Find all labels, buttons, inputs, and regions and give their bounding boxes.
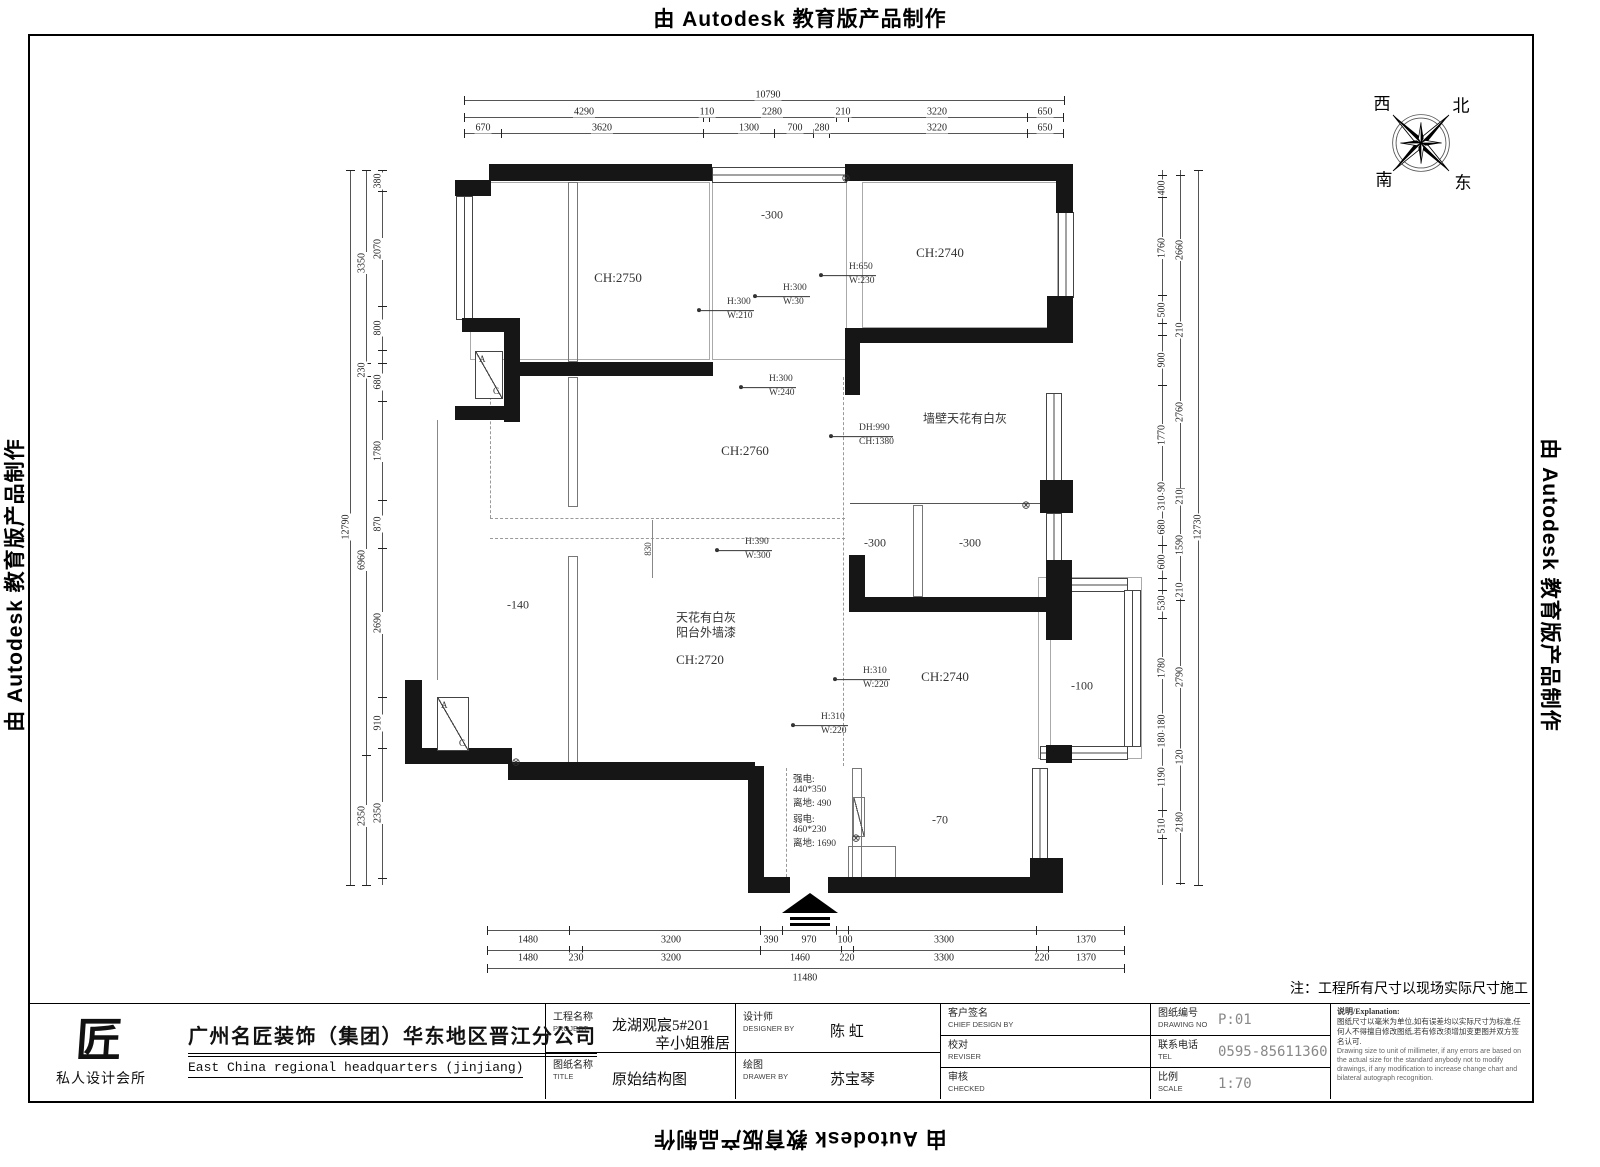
scale-label-cn: 比例	[1158, 1072, 1178, 1083]
dim-tick	[378, 191, 387, 192]
dimension-label: 600	[1157, 554, 1168, 571]
dim-tick	[569, 926, 570, 935]
dim-tick	[1176, 883, 1185, 884]
wall-segment	[1046, 745, 1072, 763]
dim-tick	[464, 129, 465, 138]
checker-label: 审核 CHECKED	[948, 1072, 985, 1093]
plan-annotation: H:310W:220	[862, 666, 890, 692]
dimension-label: 2690	[373, 612, 384, 634]
entry-arrow	[782, 893, 838, 913]
dimension-label: 180	[1157, 714, 1168, 731]
dim-tick	[782, 926, 783, 935]
partition-line	[568, 556, 578, 764]
dim-tick	[487, 946, 488, 955]
plan-annotation: 830	[643, 542, 653, 556]
dimension-label: 2660	[1175, 239, 1186, 261]
drawer-label-en: DRAWER BY	[743, 1072, 788, 1081]
dim-tick	[378, 363, 387, 364]
company-logo: 匠	[70, 1014, 128, 1066]
wall-segment	[845, 164, 1073, 181]
dim-tick	[1158, 323, 1167, 324]
dimension-label: 220	[839, 953, 856, 964]
dimension-label: 3220	[926, 123, 948, 134]
project-label-en: PROJECT	[553, 1024, 593, 1033]
dimension-label: 100	[837, 935, 854, 946]
designer-label-en: DESIGNER BY	[743, 1024, 794, 1033]
dim-tick	[378, 500, 387, 501]
ac-label-c: C	[493, 386, 499, 396]
dim-tick	[774, 129, 775, 138]
dimension-label: 1370	[1075, 935, 1097, 946]
dimension-label: 2790	[1175, 666, 1186, 688]
dimension-label: 210	[1175, 582, 1186, 599]
dim-tick	[1194, 885, 1203, 886]
plan-annotation: CH:2720	[676, 652, 724, 668]
dimension-label: 910	[373, 715, 384, 732]
dimension-label: 280	[814, 123, 831, 134]
titleblock-divider	[1330, 1003, 1331, 1099]
dim-tick	[703, 129, 704, 138]
dashed-ceiling-line	[490, 518, 845, 519]
dimension-label: 1460	[789, 953, 811, 964]
wall-segment	[520, 362, 713, 376]
dim-rail	[1180, 170, 1181, 885]
checker-label-en: CHECKED	[948, 1084, 985, 1093]
dim-tick	[378, 170, 387, 171]
plan-annotation: -140	[507, 598, 529, 613]
dim-tick	[1124, 926, 1125, 935]
titleblock-divider	[940, 1035, 1330, 1036]
dimension-label: 12790	[341, 514, 352, 541]
drawing-no-label-en: DRAWING NO	[1158, 1020, 1207, 1029]
dim-tick	[1158, 175, 1167, 176]
plan-annotation: DH:990CH:1380	[858, 423, 894, 449]
plan-annotation: CH:2740	[916, 245, 964, 261]
dimension-label: 2350	[357, 805, 368, 827]
dim-tick	[362, 755, 371, 756]
dimension-label: 120	[1175, 749, 1186, 766]
dimension-label: 3200	[660, 935, 682, 946]
plan-annotation: CH:2740	[921, 669, 969, 685]
dimension-label: 10790	[755, 90, 782, 101]
entry-step-line	[790, 923, 830, 926]
dimension-label: 970	[801, 935, 818, 946]
ac-unit-box: AC	[475, 351, 503, 399]
wall-segment	[845, 328, 1067, 343]
tel-value: 0595-85611360	[1218, 1044, 1328, 1060]
tel-label-cn: 联系电话	[1158, 1040, 1198, 1051]
dimension-label: 400	[1157, 180, 1168, 197]
wall-segment	[862, 597, 1052, 612]
project-label: 工程名称 PROJECT	[553, 1012, 593, 1033]
dim-tick	[362, 885, 371, 886]
dim-tick	[362, 170, 371, 171]
dimension-label: 380	[373, 173, 384, 190]
drawing-no-value: P:01	[1218, 1012, 1252, 1028]
dim-tick	[378, 350, 387, 351]
dimension-label: 6960	[357, 549, 368, 571]
tel-label: 联系电话 TEL	[1158, 1040, 1198, 1061]
titleblock-divider	[735, 1003, 736, 1099]
dimension-label: 1480	[517, 935, 539, 946]
sheet-title-label: 图纸名称 TITLE	[553, 1060, 593, 1081]
dimension-label: 180	[1157, 732, 1168, 749]
plan-annotation: CH:2750	[594, 270, 642, 286]
drawer-label: 绘图 DRAWER BY	[743, 1060, 788, 1081]
dimension-label: 1480	[517, 953, 539, 964]
client-label-en: CHIEF DESIGN BY	[948, 1020, 1013, 1029]
wall-segment	[1046, 560, 1072, 640]
wall-segment	[455, 180, 491, 196]
ac-label-c: C	[459, 738, 465, 748]
wall-segment	[845, 343, 860, 395]
window-symbol	[1046, 393, 1062, 482]
reviser-label-en: REVISER	[948, 1052, 981, 1061]
dimension-label: 1780	[1157, 657, 1168, 679]
wall-segment	[828, 877, 1063, 893]
plan-annotation: 阳台外墙漆	[676, 624, 736, 641]
dimension-label: 1590	[1175, 534, 1186, 556]
dim-tick	[1063, 129, 1064, 138]
plan-annotation: -100	[1071, 679, 1093, 694]
window-symbol	[1046, 513, 1062, 562]
plan-annotation: H:300W:240	[768, 374, 796, 400]
dimension-label: 1370	[1075, 953, 1097, 964]
dimension-label: 210	[835, 107, 852, 118]
dimension-label: 800	[373, 320, 384, 337]
dim-rail	[464, 133, 1064, 134]
dimension-label: 670	[475, 123, 492, 134]
dim-tick	[487, 964, 488, 973]
plan-annotation: H:300W:30	[782, 283, 810, 309]
project-value-line2: 辛小姐雅居	[655, 1032, 730, 1053]
titleblock-divider	[545, 1052, 940, 1053]
dimension-label: 1190	[1157, 766, 1168, 788]
drain-symbol: ⊗	[851, 833, 860, 844]
dimension-label: 310	[1157, 495, 1168, 512]
dim-tick	[1158, 385, 1167, 386]
wall-segment	[508, 762, 755, 780]
scale-value: 1:70	[1218, 1076, 1252, 1092]
dim-tick	[487, 926, 488, 935]
dimension-label: 210	[1175, 489, 1186, 506]
dimension-label: 2070	[373, 238, 384, 260]
drain-symbol: ⊗	[1021, 500, 1030, 511]
wall-segment	[1040, 480, 1073, 513]
plan-annotation: 离地: 490	[793, 795, 831, 809]
explanation-box: 说明/Explanation: 图纸尺寸以毫米为单位,如有误差均以实际尺寸为标准…	[1337, 1007, 1525, 1083]
partition-line	[913, 505, 923, 597]
dimension-label: 1760	[1157, 237, 1168, 259]
ac-unit-box: AC	[437, 697, 469, 751]
dimension-label: 2280	[761, 107, 783, 118]
dimension-label: 230	[357, 362, 368, 379]
dim-tick	[760, 946, 761, 955]
drain-symbol: ⊗	[841, 173, 850, 184]
window-symbol	[1124, 590, 1141, 747]
window-symbol	[456, 196, 473, 320]
client-signature-label: 客户签名 CHIEF DESIGN BY	[948, 1008, 1013, 1029]
dim-tick	[464, 113, 465, 122]
drawing-no-label: 图纸编号 DRAWING NO	[1158, 1008, 1207, 1029]
site-note: 注：工程所有尺寸以现场实际尺寸施工	[1100, 978, 1528, 998]
explanation-text-cn: 图纸尺寸以毫米为单位,如有误差均以实际尺寸为标准,任何人不得擅自修改图纸,若有修…	[1337, 1017, 1525, 1046]
dim-tick	[1036, 926, 1037, 935]
designer-label: 设计师 DESIGNER BY	[743, 1012, 794, 1033]
dimension-label: 530	[1157, 595, 1168, 612]
dimension-label: 650	[1037, 123, 1054, 134]
thin-wall-line	[850, 503, 1046, 504]
client-label-cn: 客户签名	[948, 1008, 988, 1019]
dim-tick	[501, 129, 502, 138]
plan-annotation: 墙壁天花有白灰	[923, 410, 1007, 427]
dim-tick	[378, 878, 387, 879]
wall-segment	[748, 877, 790, 893]
dim-tick	[1124, 946, 1125, 955]
dimension-label: 2180	[1175, 811, 1186, 833]
dim-tick	[1063, 113, 1064, 122]
plan-annotation: 强电:	[793, 771, 815, 785]
titleblock-top-border	[28, 1003, 1530, 1004]
plan-annotation: -300	[761, 208, 783, 223]
dimension-label: 11480	[792, 973, 819, 984]
dim-tick	[1176, 600, 1185, 601]
dimension-label: 1770	[1157, 424, 1168, 446]
dimension-label: 3350	[357, 252, 368, 274]
dim-tick	[1027, 129, 1028, 138]
dim-tick	[464, 96, 465, 105]
dim-tick	[1158, 545, 1167, 546]
partition-line	[568, 182, 578, 362]
dimension-label: 3300	[933, 935, 955, 946]
project-label-cn: 工程名称	[553, 1012, 593, 1023]
studio-name: 私人设计会所	[46, 1068, 156, 1088]
ac-label-a: A	[479, 354, 486, 364]
dimension-label: 1300	[738, 123, 760, 134]
dim-tick	[1158, 618, 1167, 619]
dim-tick	[1158, 295, 1167, 296]
dim-tick	[1158, 838, 1167, 839]
dim-tick	[378, 748, 387, 749]
dimension-label: 680	[1157, 519, 1168, 536]
reviser-label-cn: 校对	[948, 1040, 968, 1051]
plan-annotation: 440*350	[793, 785, 826, 795]
company-name-en: East China regional headquarters (jinjia…	[188, 1060, 523, 1078]
wall-segment	[1047, 296, 1073, 343]
plan-annotation: -300	[959, 536, 981, 551]
dimension-label: 90	[1157, 481, 1168, 493]
dim-rail	[487, 930, 1124, 931]
plan-annotation: H:390W:300	[744, 537, 772, 563]
window-symbol	[1058, 212, 1074, 298]
designer-value: 陈 虹	[830, 1020, 864, 1041]
dim-tick	[378, 401, 387, 402]
dimension-label: 1780	[373, 440, 384, 462]
partition-line	[568, 377, 578, 507]
wall-segment	[489, 164, 712, 181]
dim-rail	[366, 170, 367, 885]
dim-tick	[378, 306, 387, 307]
dim-rail	[487, 968, 1124, 969]
dimension-label: 2760	[1175, 401, 1186, 423]
dim-tick	[1194, 170, 1203, 171]
dim-tick	[346, 885, 355, 886]
dimension-label: 650	[1037, 107, 1054, 118]
dashed-ceiling-line	[786, 768, 787, 877]
plan-annotation: CH:2760	[721, 443, 769, 459]
dimension-label: 3300	[933, 953, 955, 964]
sheet-title-label-en: TITLE	[553, 1072, 593, 1081]
plan-annotation: H:310W:220	[820, 712, 848, 738]
window-symbol	[712, 167, 847, 183]
wall-segment	[1030, 858, 1063, 877]
plan-annotation: 弱电:	[793, 811, 815, 825]
wall-segment	[1056, 180, 1073, 213]
dim-tick	[378, 697, 387, 698]
dimension-label: 3200	[660, 953, 682, 964]
dashed-ceiling-line	[490, 538, 845, 539]
dim-tick	[1158, 197, 1167, 198]
dim-tick	[1158, 578, 1167, 579]
dimension-label: 2350	[373, 802, 384, 824]
entry-step-line	[790, 917, 830, 920]
dimension-label: 210	[1175, 322, 1186, 339]
dimension-label: 4290	[573, 107, 595, 118]
designer-label-cn: 设计师	[743, 1012, 773, 1023]
plan-annotation: -70	[932, 813, 948, 828]
explanation-text-en: Drawing size to unit of millimeter, if a…	[1337, 1047, 1525, 1083]
wall-segment	[748, 766, 764, 893]
dimension-label: 12730	[1193, 514, 1204, 541]
dimension-label: 3620	[591, 123, 613, 134]
dimension-label: 700	[787, 123, 804, 134]
dim-tick	[1124, 964, 1125, 973]
dim-tick	[1158, 335, 1167, 336]
sheet-title-label-cn: 图纸名称	[553, 1060, 593, 1071]
scale-label: 比例 SCALE	[1158, 1072, 1183, 1093]
titleblock-divider	[940, 1003, 941, 1099]
dimension-label: 900	[1157, 352, 1168, 369]
sheet-title-value: 原始结构图	[612, 1068, 687, 1089]
drain-symbol: ⊗	[511, 757, 520, 768]
company-name-cn: 广州名匠装饰（集团）华东地区晋江分公司	[188, 1020, 597, 1057]
dimension-label: 510	[1157, 818, 1168, 835]
plan-annotation: H:650W:230	[848, 262, 876, 288]
plan-annotation: 460*230	[793, 825, 826, 835]
explanation-title: 说明/Explanation:	[1337, 1007, 1525, 1017]
drawer-value: 苏宝琴	[830, 1068, 875, 1089]
checker-label-cn: 审核	[948, 1072, 968, 1083]
plan-annotation: H:300W:210	[726, 297, 754, 323]
titleblock-divider	[1150, 1003, 1151, 1099]
titleblock-divider	[940, 1067, 1330, 1068]
plan-annotation: 离地: 1690	[793, 835, 836, 849]
dim-tick	[378, 548, 387, 549]
dim-tick	[1176, 175, 1185, 176]
drawer-label-cn: 绘图	[743, 1060, 763, 1071]
dim-tick	[1158, 590, 1167, 591]
dimension-label: 870	[373, 516, 384, 533]
tel-label-en: TEL	[1158, 1052, 1198, 1061]
balcony-edge-line	[437, 420, 438, 680]
reviser-label: 校对 REVISER	[948, 1040, 981, 1061]
window-symbol	[1032, 768, 1048, 860]
dimension-label: 3220	[926, 107, 948, 118]
dim-tick	[1158, 810, 1167, 811]
dim-tick	[1064, 96, 1065, 105]
ac-label-a: A	[441, 700, 448, 710]
dim-tick	[346, 170, 355, 171]
dimension-label: 110	[699, 107, 716, 118]
scale-label-en: SCALE	[1158, 1084, 1183, 1093]
dim-tick	[1027, 113, 1028, 122]
dim-tick	[760, 926, 761, 935]
wall-segment	[455, 406, 520, 420]
dimension-label: 390	[763, 935, 780, 946]
dimension-label: 220	[1034, 953, 1051, 964]
dimension-label: 680	[373, 374, 384, 391]
dimension-label: 230	[568, 953, 585, 964]
plan-annotation: -300	[864, 536, 886, 551]
drawing-no-label-cn: 图纸编号	[1158, 1008, 1198, 1019]
dimension-label: 500	[1157, 302, 1168, 319]
